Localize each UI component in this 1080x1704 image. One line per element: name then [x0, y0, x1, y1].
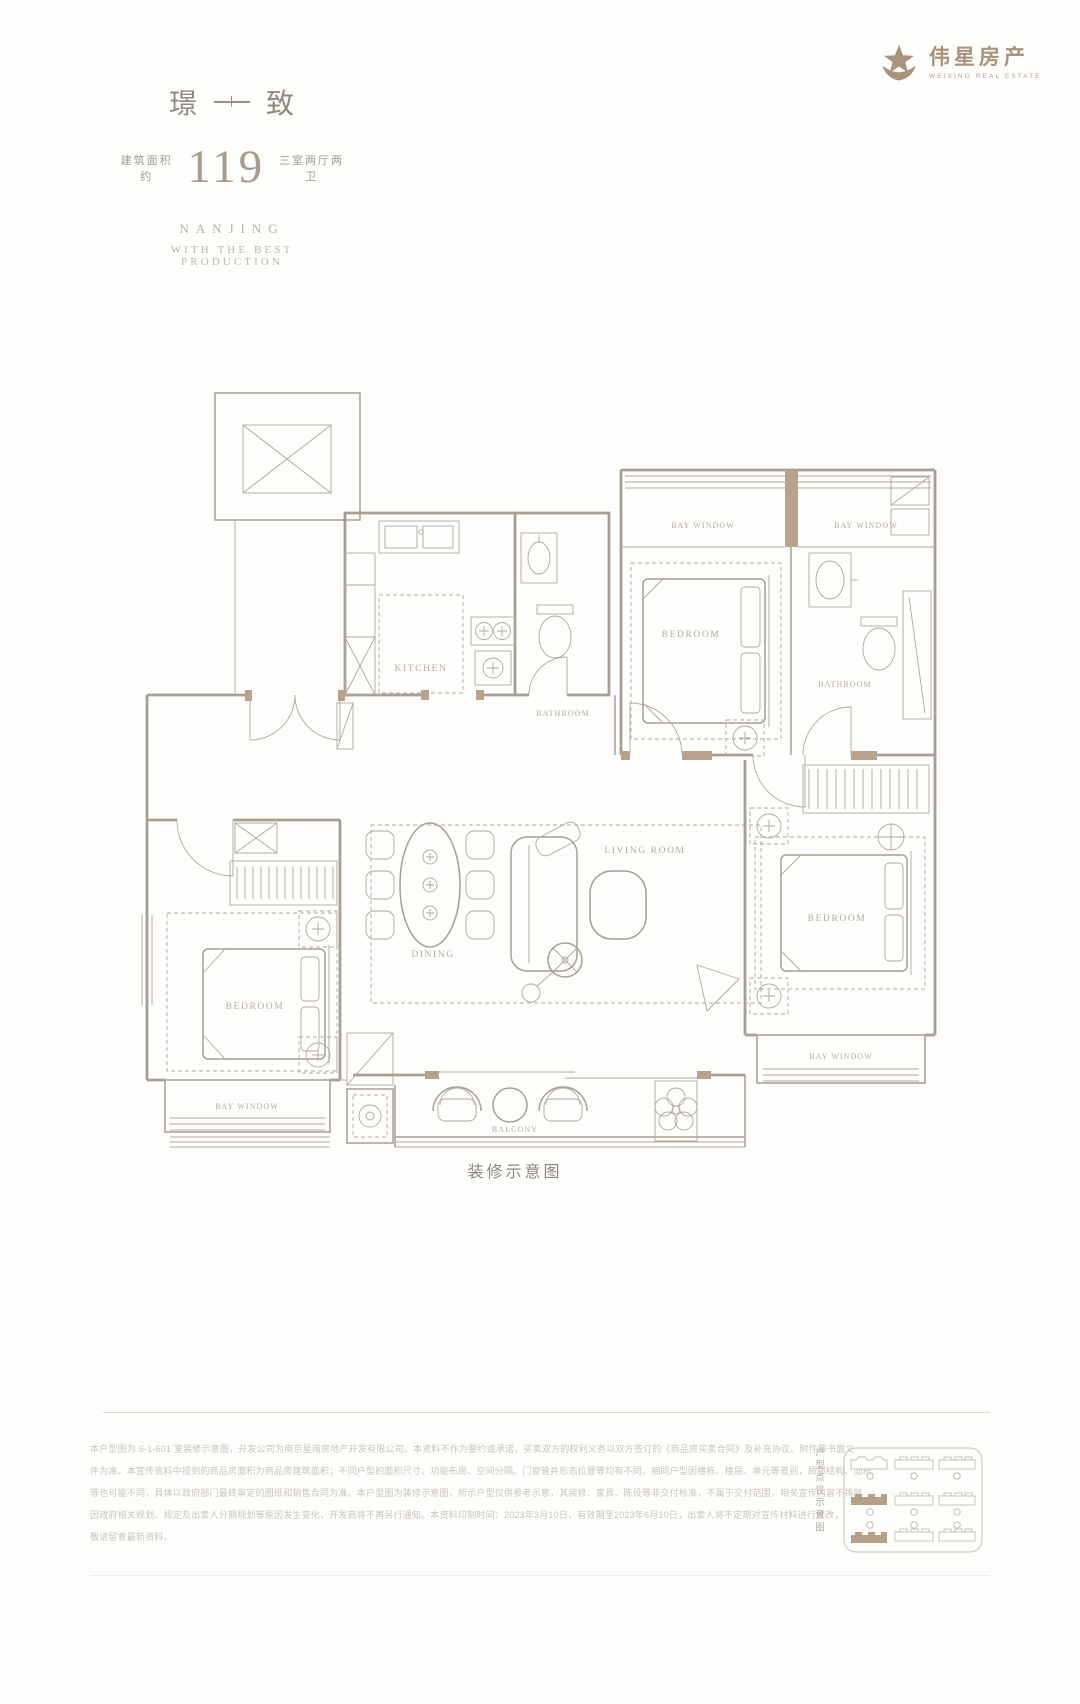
title-char-right: 致: [266, 82, 295, 122]
room-label-bay-window-right: BAY WINDOW: [809, 1052, 873, 1061]
elevator-shaft: [215, 393, 360, 693]
tagline: NANJING WITH THE BEST PRODUCTION: [118, 221, 346, 268]
disclaimer-line: 件为准。本宣传资料中提到的商品房面积为商品房建筑面积；不同户型的面积尺寸、功能布…: [90, 1460, 796, 1482]
title-separator-icon: [214, 101, 250, 103]
room-label-bedroom-left: BEDROOM: [226, 1002, 285, 1012]
utility-closet: [340, 1033, 393, 1143]
bedroom-top: BEDROOM: [630, 563, 781, 756]
brochure-page: 伟星房产 WEIXING REAL ESTATE 璟 致 建筑面积约 119 三…: [0, 0, 1080, 1704]
room-label-bedroom-top: BEDROOM: [662, 630, 721, 640]
tagline-city: NANJING: [118, 221, 346, 237]
building-footprint-highlighted: [851, 1494, 887, 1505]
title-char-left: 璟: [169, 82, 198, 122]
keyplan-label: 户型点位示意图: [811, 1447, 825, 1535]
kitchen: KITCHEN: [345, 513, 515, 700]
disclaimer-line: 本户型图为 6-1-601 室装修示意图，开发公司为南京星雨房地产开发有限公司。…: [90, 1438, 796, 1460]
bathroom-center: BATHROOM: [515, 513, 609, 718]
building-footprint: [851, 1457, 975, 1469]
bedroom-right: BEDROOM BAY WINDOW: [745, 755, 935, 1083]
room-label-dining: DINING: [411, 950, 454, 960]
divider-line: [103, 1412, 990, 1413]
star-logo-icon: [878, 42, 920, 84]
tagline-text: WITH THE BEST PRODUCTION: [118, 244, 346, 268]
disclaimer: 本户型图为 6-1-601 室装修示意图，开发公司为南京星雨房地产开发有限公司。…: [90, 1438, 796, 1548]
area-value: 119: [187, 144, 265, 191]
brand-name: 伟星房产: [929, 46, 1042, 69]
room-label-living-room: LIVING ROOM: [604, 846, 685, 856]
room-label-bay-window-left: BAY WINDOW: [215, 1102, 279, 1111]
room-label-bathroom-center: BATHROOM: [536, 709, 590, 718]
room-label-balcony: BALCONY: [492, 1125, 538, 1134]
floorplan-svg: KITCHEN BATHROOM BAY WINDOW BAY WINDOW: [85, 385, 945, 1155]
balcony: BALCONY: [170, 1075, 745, 1147]
disclaimer-line: 因政府相关规划、规定及出卖人分期规划等原因发生变化，开发商将不再另行通知。本资料…: [90, 1504, 796, 1526]
room-label-bay-window-2: BAY WINDOW: [834, 521, 898, 530]
site-keyplan-svg: [843, 1447, 983, 1553]
building-footprint-highlighted: [851, 1532, 887, 1543]
header: 璟 致 建筑面积约 119 三室两厅两卫 NANJING WITH THE BE…: [118, 82, 346, 268]
bedroom-left: BEDROOM BAY WINDOW: [142, 820, 340, 1132]
unit-markers: [867, 1509, 960, 1528]
room-label-bedroom-right: BEDROOM: [808, 914, 867, 924]
entry-foyer: [147, 690, 353, 1080]
plan-caption: 装修示意图: [85, 1158, 945, 1182]
disclaimer-line: 等也可能不同，具体以政府部门最终审定的图纸和销售合同为准。本户型图为装修示意图，…: [90, 1482, 796, 1504]
room-label-bathroom-right: BATHROOM: [818, 680, 872, 689]
disclaimer-line: 敬请留意最新资料。: [90, 1526, 796, 1548]
brand-subtitle: WEIXING REAL ESTATE: [929, 73, 1042, 80]
area-label: 建筑面积约: [118, 152, 175, 184]
room-label-bay-window-1: BAY WINDOW: [671, 521, 735, 530]
rooms-label: 三室两厅两卫: [277, 152, 346, 184]
area-row: 建筑面积约 119 三室两厅两卫: [118, 144, 346, 191]
building-footprint: [895, 1493, 975, 1505]
page-title: 璟 致: [118, 82, 346, 122]
room-label-kitchen: KITCHEN: [395, 664, 448, 674]
brand-logo: 伟星房产 WEIXING REAL ESTATE: [878, 42, 1042, 84]
bathroom-right: BATHROOM: [803, 553, 931, 755]
bay-windows-top: BAY WINDOW BAY WINDOW: [621, 470, 935, 1035]
bottom-rule: [90, 1575, 990, 1576]
floorplan: KITCHEN BATHROOM BAY WINDOW BAY WINDOW: [85, 385, 945, 1155]
building-footprint: [895, 1529, 975, 1541]
unit-markers: [867, 1473, 960, 1479]
site-keyplan: [843, 1447, 983, 1558]
living-dining: LIVING ROOM DINING: [353, 819, 761, 1079]
